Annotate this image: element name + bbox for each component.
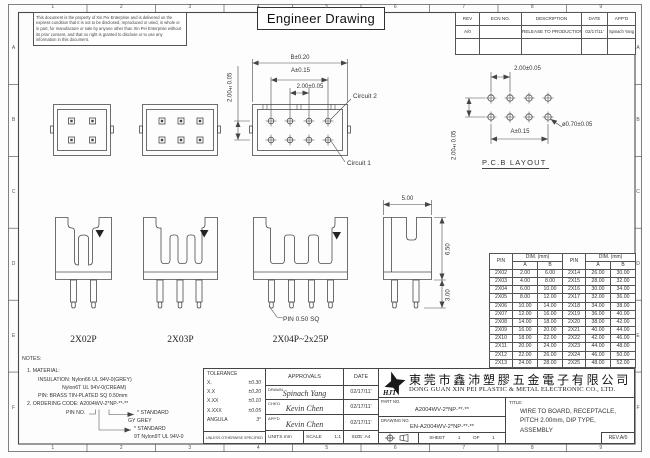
projection-symbols — [379, 433, 419, 443]
third-angle-projection-icon — [384, 433, 414, 443]
drawing-no-label: DRAWING NO. — [381, 418, 410, 423]
note-insulation2: Nylon6T UL 94V-0(CREAM) — [62, 386, 126, 392]
tolerance-row: X.±0.30 — [207, 380, 261, 386]
pin-size-note: PIN 0.50 SQ — [283, 316, 320, 323]
dim-label-a: A±0.15 — [273, 68, 328, 75]
front-view-2x02p — [51, 105, 114, 156]
polarity-triangle-icon — [96, 230, 105, 238]
company-block: HJT 東莞市鑫沛塑膠五金電子有限公司 DONG GUAN XIN PEI PL… — [379, 369, 634, 443]
tolerance-row: X.X±0.20 — [207, 389, 261, 395]
units-cell: UNITS mm — [266, 431, 304, 443]
grid-row-label: D — [9, 228, 19, 300]
grid-col-label: 2 — [87, 445, 156, 451]
table-row: 2X1120.0024.002X2344.0048.00 — [490, 343, 636, 351]
part-no-label: PART NO. — [381, 399, 400, 404]
grid-col-label: 8 — [498, 4, 567, 10]
table-row: 2X022.006.002X1426.0030.00 — [490, 270, 636, 278]
drawn-label: DRAWN — [268, 387, 283, 392]
grid-row-label: A — [634, 13, 642, 85]
revision-header-row: REV ECN NO. DESCRIPTION DATE APP'D — [456, 13, 636, 26]
sheet-total: 1 — [492, 436, 495, 441]
side-view-2x03p — [144, 218, 218, 309]
table-row: 2X046.0010.002X1630.0034.00 — [490, 286, 636, 294]
note-insulation: INSULATION: Nylon66 UL 94V-0(GREY) — [38, 378, 132, 384]
approved-date: 02/17/11' — [344, 415, 378, 431]
property-notice: This document is the property of Xin Pei… — [33, 12, 187, 46]
grid-col-label: 3 — [156, 445, 225, 451]
grid-col-label: 8 — [498, 445, 567, 451]
table-row: 2X1324.0028.002X2548.0052.00 — [490, 359, 636, 367]
note-material-code: 9T Nylon9T UL 94V-0 — [134, 435, 184, 441]
table-row: 2X0814.0018.002X2038.0042.00 — [490, 318, 636, 326]
note-standard2: * STANDARD — [134, 427, 166, 433]
units-value: mm — [284, 435, 292, 440]
title-line-1: WIRE TO BOARD, RECEPTACLE, — [520, 407, 616, 416]
note-standard1: * STANDARD — [137, 411, 169, 417]
dim-label-pin-length: 3.00 — [444, 281, 453, 309]
tolerance-row: ANGULA3° — [207, 417, 261, 423]
sheet-cell: SHEET 1 OF 1 — [419, 433, 505, 443]
table-row: 2X0916.0020.002X2140.0044.00 — [490, 327, 636, 335]
company-name-row: HJT 東莞市鑫沛塑膠五金電子有限公司 DONG GUAN XIN PEI PL… — [379, 369, 634, 398]
grid-row-label: C — [9, 156, 19, 228]
sheet-number: 1 — [458, 436, 461, 441]
tolerance-block: TOLERANCE X.±0.30X.X±0.20X.XX±0.10X.XXX±… — [204, 369, 266, 443]
tolerance-row: X.XXX±0.05 — [207, 408, 261, 414]
grid-col-label: 3 — [156, 4, 225, 10]
grid-col-label: 6 — [361, 445, 430, 451]
profile-view — [384, 218, 432, 309]
approvals-heading: APPROVALS — [266, 369, 344, 385]
table-row: 2X058.0012.002X1732.0036.00 — [490, 294, 636, 302]
grid-col-label: 9 — [567, 4, 636, 10]
dim-label-width: 5.00 — [388, 196, 427, 203]
drawing-no-cell: DRAWING NO. EN-A2004WV-2*NP-**-** — [379, 417, 505, 433]
units-label: UNITS — [268, 435, 282, 440]
notes-heading: NOTES: — [22, 357, 41, 363]
pin-dimension-table: PIN DIM. (mm) PIN DIM. (mm) A B A B 2X02… — [489, 253, 636, 368]
view-label-2x04p: 2X04P~2x25P — [253, 335, 348, 346]
checked-date: 02/17/11' — [344, 400, 378, 414]
grid-col-label: 7 — [430, 4, 499, 10]
grid-col-label: 1 — [19, 4, 88, 10]
grid-row-label: D — [634, 228, 642, 300]
table-row: 2X0712.0016.002X1936.0040.00 — [490, 310, 636, 318]
title-cell: TITLE: WIRE TO BOARD, RECEPTACLE, PITCH … — [506, 398, 634, 443]
revision-row: A/0 RELEASE TO PRODUCTION 02/17/11' Spin… — [456, 26, 636, 39]
title-block: TOLERANCE X.±0.30X.X±0.20X.XX±0.10X.XXX±… — [203, 368, 635, 444]
grid-col-label: 2 — [87, 4, 156, 10]
part-no-value: A2004WV-2*NP-**-** — [379, 407, 505, 413]
table-row: 2X034.008.002X1528.0032.00 — [490, 278, 636, 286]
grid-col-label: 6 — [361, 4, 430, 10]
tolerance-heading: TOLERANCE — [204, 369, 265, 377]
grid-col-label: 7 — [430, 445, 499, 451]
side-view-2x04p — [254, 218, 348, 309]
grid-col-label: 4 — [224, 445, 293, 451]
company-name-en: DONG GUAN XIN PEI PLASTIC & METAL ELECTR… — [409, 386, 616, 393]
grid-col-label: 1 — [19, 445, 88, 451]
approval-row-approved: APP'DKevin Chen 02/17/11' — [266, 415, 378, 432]
grid-row-label: E — [9, 300, 19, 372]
circuit2-label: Circuit 2 — [353, 93, 377, 100]
drawing-sheet: This document is the property of Xin Pei… — [0, 0, 650, 458]
table-row: 2X1222.0026.002X2446.0050.00 — [490, 351, 636, 359]
title-line-2: PITCH 2.00mm, DIP TYPE, — [520, 416, 616, 425]
scale-label: SCALE — [306, 435, 322, 440]
note-material: 1. MATERIAL: — [27, 369, 60, 375]
grid-row-label: B — [9, 84, 19, 156]
checked-label: CHK'D — [268, 401, 280, 406]
grid-row-label: A — [9, 13, 19, 85]
pcb-dim-a: A±0.15 — [494, 129, 546, 136]
circuit1-label: Circuit 1 — [347, 160, 371, 167]
grid-row-label: C — [634, 156, 642, 228]
checked-signature: Kevin Chen — [286, 401, 324, 413]
approved-label: APP'D — [268, 416, 280, 421]
pin-dimension-header: PIN DIM. (mm) PIN DIM. (mm) A B A B — [490, 254, 636, 270]
approvals-block: APPROVALS DATE DRAWNSpinach Yang 02/17/1… — [266, 369, 379, 443]
date-heading: DATE — [344, 369, 378, 385]
rev-badge: REV.A/0 — [601, 432, 634, 443]
table-row: 2X1018.0022.002X2242.0046.00 — [490, 335, 636, 343]
scale-value: 1:1 — [334, 435, 341, 440]
grid-col-label: 4 — [224, 4, 293, 10]
dim-label-pitch: 2.00±0.05 — [286, 84, 334, 91]
dim-label-b: B±0.20 — [270, 55, 330, 62]
pcb-dim-pitch: 2.00±0.05 — [500, 66, 555, 73]
scale-cell: SCALE1:1 — [304, 431, 344, 443]
approved-signature: Kevin Chen — [286, 417, 324, 429]
table-row: 2X0610.0014.002X1834.0038.00 — [490, 302, 636, 310]
approval-row-checked: CHK'DKevin Chen 02/17/11' — [266, 400, 378, 415]
grid-row-label: B — [634, 84, 642, 156]
sheet-label: SHEET — [429, 436, 445, 441]
pcb-dim-row: 2.00±0.05 — [450, 120, 459, 170]
pcb-dim-hole: ø0.70±0.05 — [562, 122, 592, 129]
size-cell: SIZE: A4 — [344, 431, 378, 443]
note-ordering-code: 2. ORDERING CODE: A2004WV-2*NP-**-** — [27, 402, 128, 408]
front-view-2x03p — [140, 105, 221, 156]
grid-row-label: E — [634, 300, 642, 372]
sheet-of: OF — [473, 436, 480, 441]
grid-col-label: 9 — [567, 445, 636, 451]
tolerance-rows: X.±0.30X.X±0.20X.XX±0.10X.XXX±0.05ANGULA… — [204, 377, 265, 431]
view-label-2x02p: 2X02P — [55, 335, 112, 346]
grid-col-label: 5 — [293, 445, 362, 451]
note-pin: PIN: BRASS TIN-PLATED SQ 0.50mm — [38, 394, 127, 400]
dim-label-row-pitch: 2.00±0.05 — [226, 62, 235, 112]
part-no-cell: PART NO. A2004WV-2*NP-**-** — [379, 398, 505, 417]
drawing-no-value: EN-A2004WV-2*NP-**-** — [379, 424, 505, 430]
polarity-triangle-icon — [333, 232, 342, 240]
grid-row-label: F — [9, 372, 19, 444]
grid-row-label: F — [634, 372, 642, 444]
revision-empty-row — [456, 39, 636, 55]
drawn-date: 02/17/11' — [344, 386, 378, 400]
page-title: Engineer Drawing — [257, 7, 385, 30]
revision-table: REV ECN NO. DESCRIPTION DATE APP'D A/0 R… — [455, 12, 636, 55]
polarity-triangle-icon — [200, 230, 209, 238]
approval-row-drawn: DRAWNSpinach Yang 02/17/11' — [266, 386, 378, 401]
note-pin-no: PIN NO. — [66, 411, 85, 417]
drawn-signature: Spinach Yang — [283, 386, 327, 398]
view-label-2x03p: 2X03P — [143, 335, 218, 346]
company-logo-text: HJT — [383, 389, 396, 397]
side-view-2x02p — [56, 218, 112, 309]
dim-label-height: 6.50 — [444, 228, 453, 270]
title-label: TITLE: — [509, 400, 523, 405]
tolerance-footer: UNLESS OTHERWISE SPECIFIED — [204, 431, 265, 443]
tolerance-row: X.XX±0.10 — [207, 398, 261, 404]
grid-col-label: 5 — [293, 4, 362, 10]
note-grey: GY GREY — [128, 419, 152, 425]
pcb-layout-title: P.C.B LAYOUT — [482, 158, 549, 169]
